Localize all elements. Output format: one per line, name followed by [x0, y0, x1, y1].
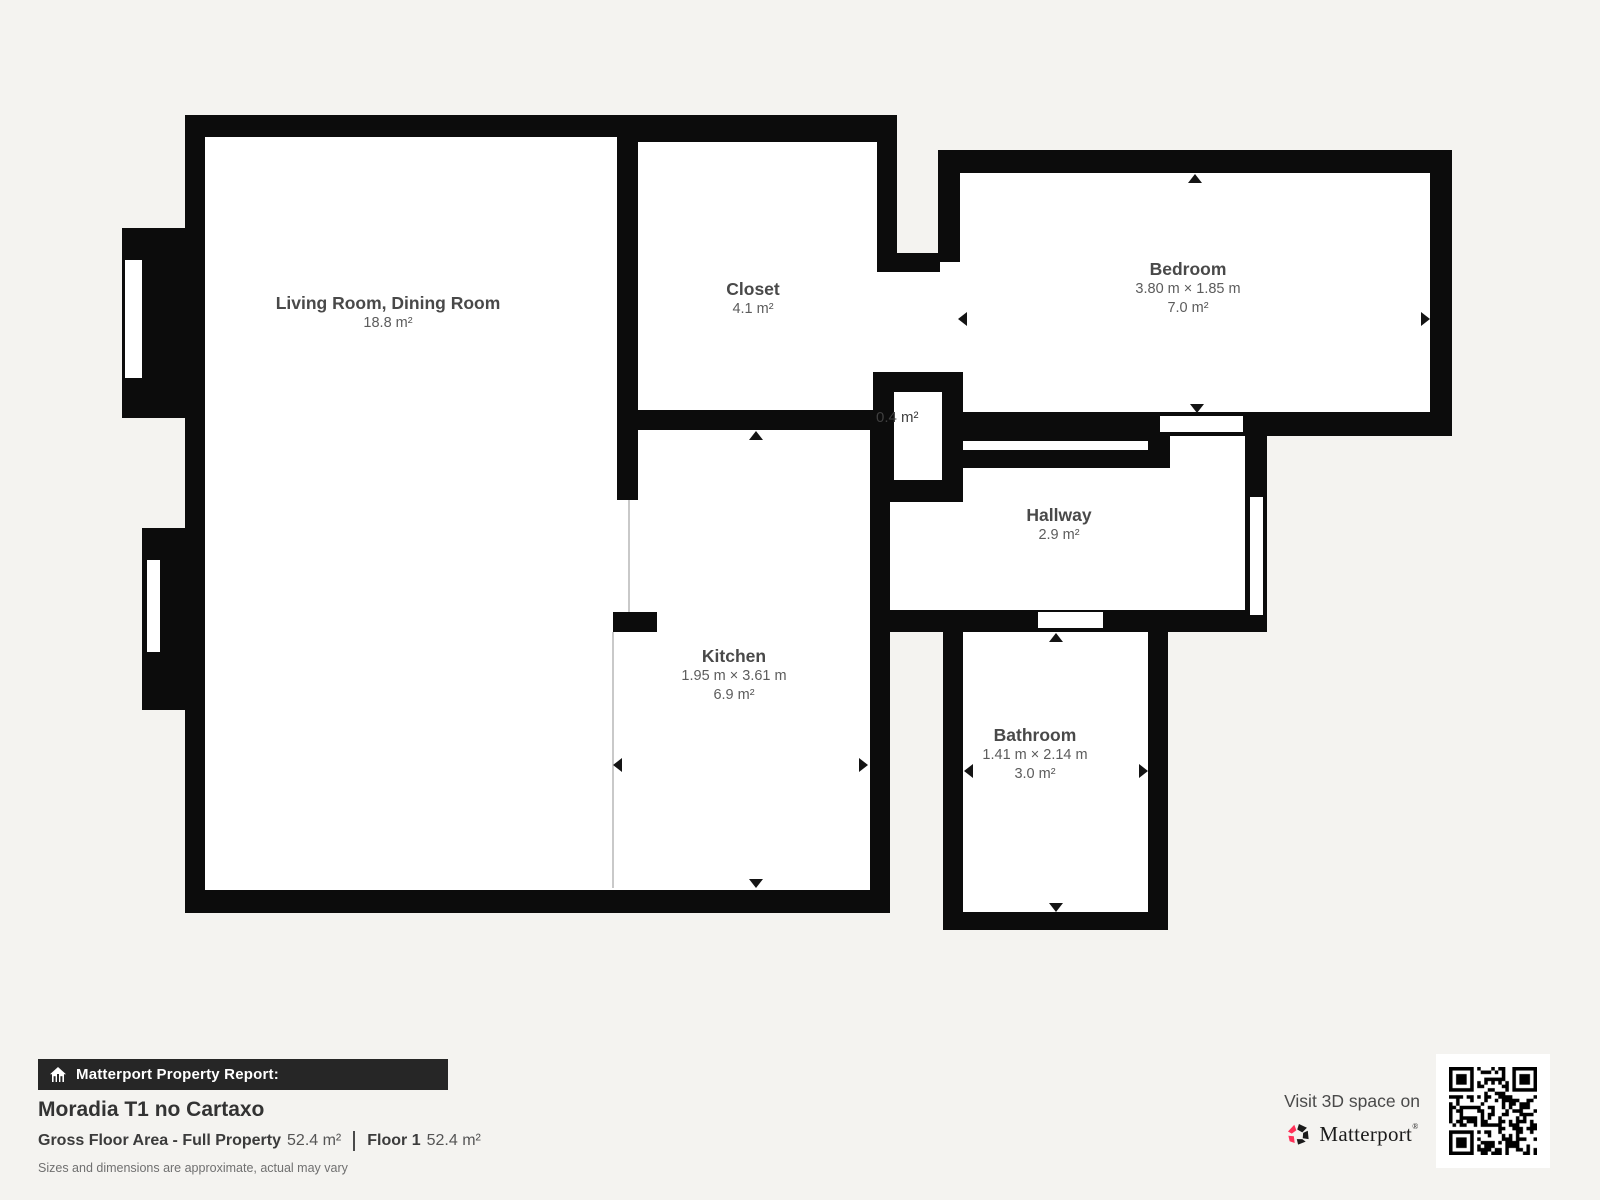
room-label-bedroom: Bedroom 3.80 m × 1.85 m 7.0 m²	[1135, 259, 1240, 318]
room-floor-hallway	[1168, 436, 1245, 476]
property-name: Moradia T1 no Cartaxo	[38, 1098, 264, 1122]
wall-segment	[877, 253, 940, 272]
room-dimensions: 1.95 m × 3.61 m	[681, 667, 786, 686]
room-floor-closet	[638, 142, 877, 410]
room-label-living: Living Room, Dining Room 18.8 m²	[276, 293, 501, 333]
window-slot	[147, 560, 160, 652]
window-slot	[125, 260, 142, 378]
door-opening	[938, 262, 960, 378]
qr-code-pattern	[1449, 1067, 1537, 1155]
room-label-kitchen: Kitchen 1.95 m × 3.61 m 6.9 m²	[681, 646, 786, 705]
door-slot	[963, 441, 1148, 450]
room-area: 3.0 m²	[982, 765, 1087, 784]
measure-arrow-left-icon	[964, 764, 973, 778]
measure-arrow-down-icon	[749, 879, 763, 888]
report-title-bar: Matterport Property Report:	[38, 1059, 448, 1090]
room-name: Hallway	[1026, 505, 1091, 526]
visit-3d-block: Visit 3D space on Matterport®	[1262, 1091, 1442, 1153]
room-label-closet: Closet 4.1 m²	[726, 279, 779, 319]
measure-arrow-right-icon	[1421, 312, 1430, 326]
measure-arrow-up-icon	[749, 431, 763, 440]
matterport-brand: Matterport®	[1285, 1121, 1418, 1148]
room-floor-small-closet	[894, 392, 942, 480]
measure-arrow-down-icon	[1049, 903, 1063, 912]
visit-3d-text: Visit 3D space on	[1262, 1091, 1442, 1112]
matterport-logo-icon	[1285, 1121, 1312, 1148]
door-opening	[1038, 612, 1103, 628]
report-title: Matterport Property Report:	[76, 1066, 279, 1083]
room-area: 18.8 m²	[276, 314, 501, 333]
room-dimensions: 3.80 m × 1.85 m	[1135, 280, 1240, 299]
exterior-gap	[890, 632, 943, 930]
disclaimer-text: Sizes and dimensions are approximate, ac…	[38, 1161, 348, 1175]
room-label-bathroom: Bathroom 1.41 m × 2.14 m 3.0 m²	[982, 725, 1087, 784]
room-name: Living Room, Dining Room	[276, 293, 501, 314]
gross-area-value: 52.4 m²	[287, 1132, 341, 1150]
room-area: 2.9 m²	[1026, 526, 1091, 545]
wall-stub	[613, 612, 657, 632]
trademark-symbol: ®	[1412, 1122, 1418, 1131]
door-opening	[1160, 416, 1243, 432]
house-chart-icon	[49, 1066, 67, 1084]
divider	[353, 1131, 355, 1151]
qr-code	[1436, 1054, 1550, 1168]
measure-arrow-left-icon	[613, 758, 622, 772]
gross-area-label: Gross Floor Area - Full Property	[38, 1132, 281, 1150]
room-area: 4.1 m²	[726, 300, 779, 319]
room-name: Bathroom	[982, 725, 1087, 746]
measure-arrow-right-icon	[859, 758, 868, 772]
floor-plan-report: Living Room, Dining Room 18.8 m² Closet …	[0, 0, 1600, 1200]
matterport-wordmark: Matterport®	[1319, 1122, 1418, 1147]
floor-area-value: 52.4 m²	[427, 1132, 481, 1150]
area-summary: Gross Floor Area - Full Property 52.4 m²…	[38, 1131, 481, 1151]
measure-arrow-right-icon	[1139, 764, 1148, 778]
boundary-line	[628, 500, 630, 612]
room-name: Bedroom	[1135, 259, 1240, 280]
room-area: 6.9 m²	[681, 686, 786, 705]
room-area: 7.0 m²	[1135, 299, 1240, 318]
window-slot	[1250, 497, 1263, 615]
wall-segment	[617, 137, 638, 500]
measure-arrow-down-icon	[1190, 404, 1204, 413]
door-opening	[877, 272, 897, 373]
room-floor-living	[205, 137, 617, 890]
room-dimensions: 1.41 m × 2.14 m	[982, 746, 1087, 765]
floor-label: Floor 1	[367, 1132, 420, 1150]
measure-arrow-up-icon	[1188, 174, 1202, 183]
room-label-hallway: Hallway 2.9 m²	[1026, 505, 1091, 545]
measure-arrow-left-icon	[958, 312, 967, 326]
room-name: Kitchen	[681, 646, 786, 667]
room-name: Closet	[726, 279, 779, 300]
measure-arrow-up-icon	[1049, 633, 1063, 642]
room-label-small-closet: 0.4 m²	[876, 409, 919, 426]
